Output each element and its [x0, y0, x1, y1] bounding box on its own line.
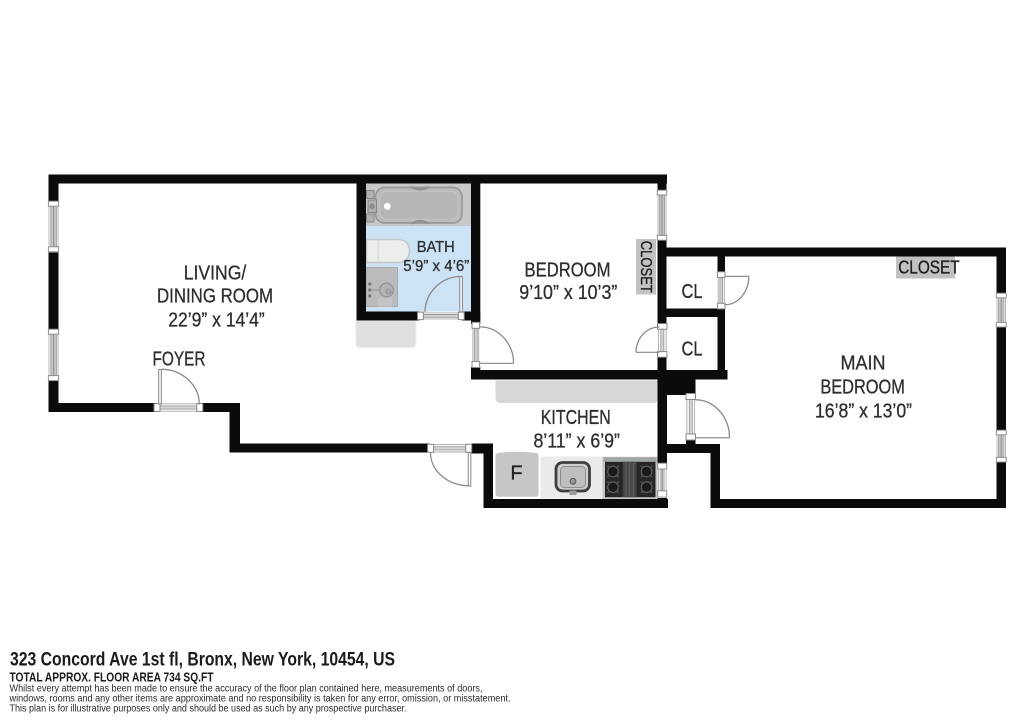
svg-text:BATH: BATH	[417, 239, 455, 256]
svg-text:LIVING/: LIVING/	[184, 263, 247, 285]
svg-text:5’9” x 4’6”: 5’9” x 4’6”	[403, 258, 469, 275]
svg-text:8’11” x 6’9”: 8’11” x 6’9”	[533, 430, 620, 452]
svg-text:This plan is for illustrative: This plan is for illustrative purposes o…	[10, 703, 407, 714]
svg-text:16’8” x 13’0”: 16’8” x 13’0”	[815, 401, 912, 423]
svg-text:22’9” x 14’4”: 22’9” x 14’4”	[168, 310, 265, 332]
svg-text:CLOSET: CLOSET	[637, 241, 654, 293]
svg-text:DINING ROOM: DINING ROOM	[157, 286, 273, 308]
svg-text:9’10” x 10’3”: 9’10” x 10’3”	[519, 282, 617, 304]
svg-text:323 Concord Ave 1st fl, Bronx,: 323 Concord Ave 1st fl, Bronx, New York,…	[10, 650, 395, 671]
svg-text:FOYER: FOYER	[153, 349, 206, 371]
svg-text:TOTAL APPROX. FLOOR AREA 734 S: TOTAL APPROX. FLOOR AREA 734 SQ.FT	[10, 670, 214, 684]
svg-text:CL: CL	[682, 281, 703, 303]
svg-text:CL: CL	[682, 338, 703, 360]
svg-text:KITCHEN: KITCHEN	[541, 407, 611, 429]
svg-text:BEDROOM: BEDROOM	[820, 377, 905, 399]
svg-text:F: F	[510, 462, 522, 484]
svg-text:CLOSET: CLOSET	[898, 258, 960, 278]
svg-text:BEDROOM: BEDROOM	[525, 259, 611, 281]
svg-text:MAIN: MAIN	[841, 353, 886, 375]
